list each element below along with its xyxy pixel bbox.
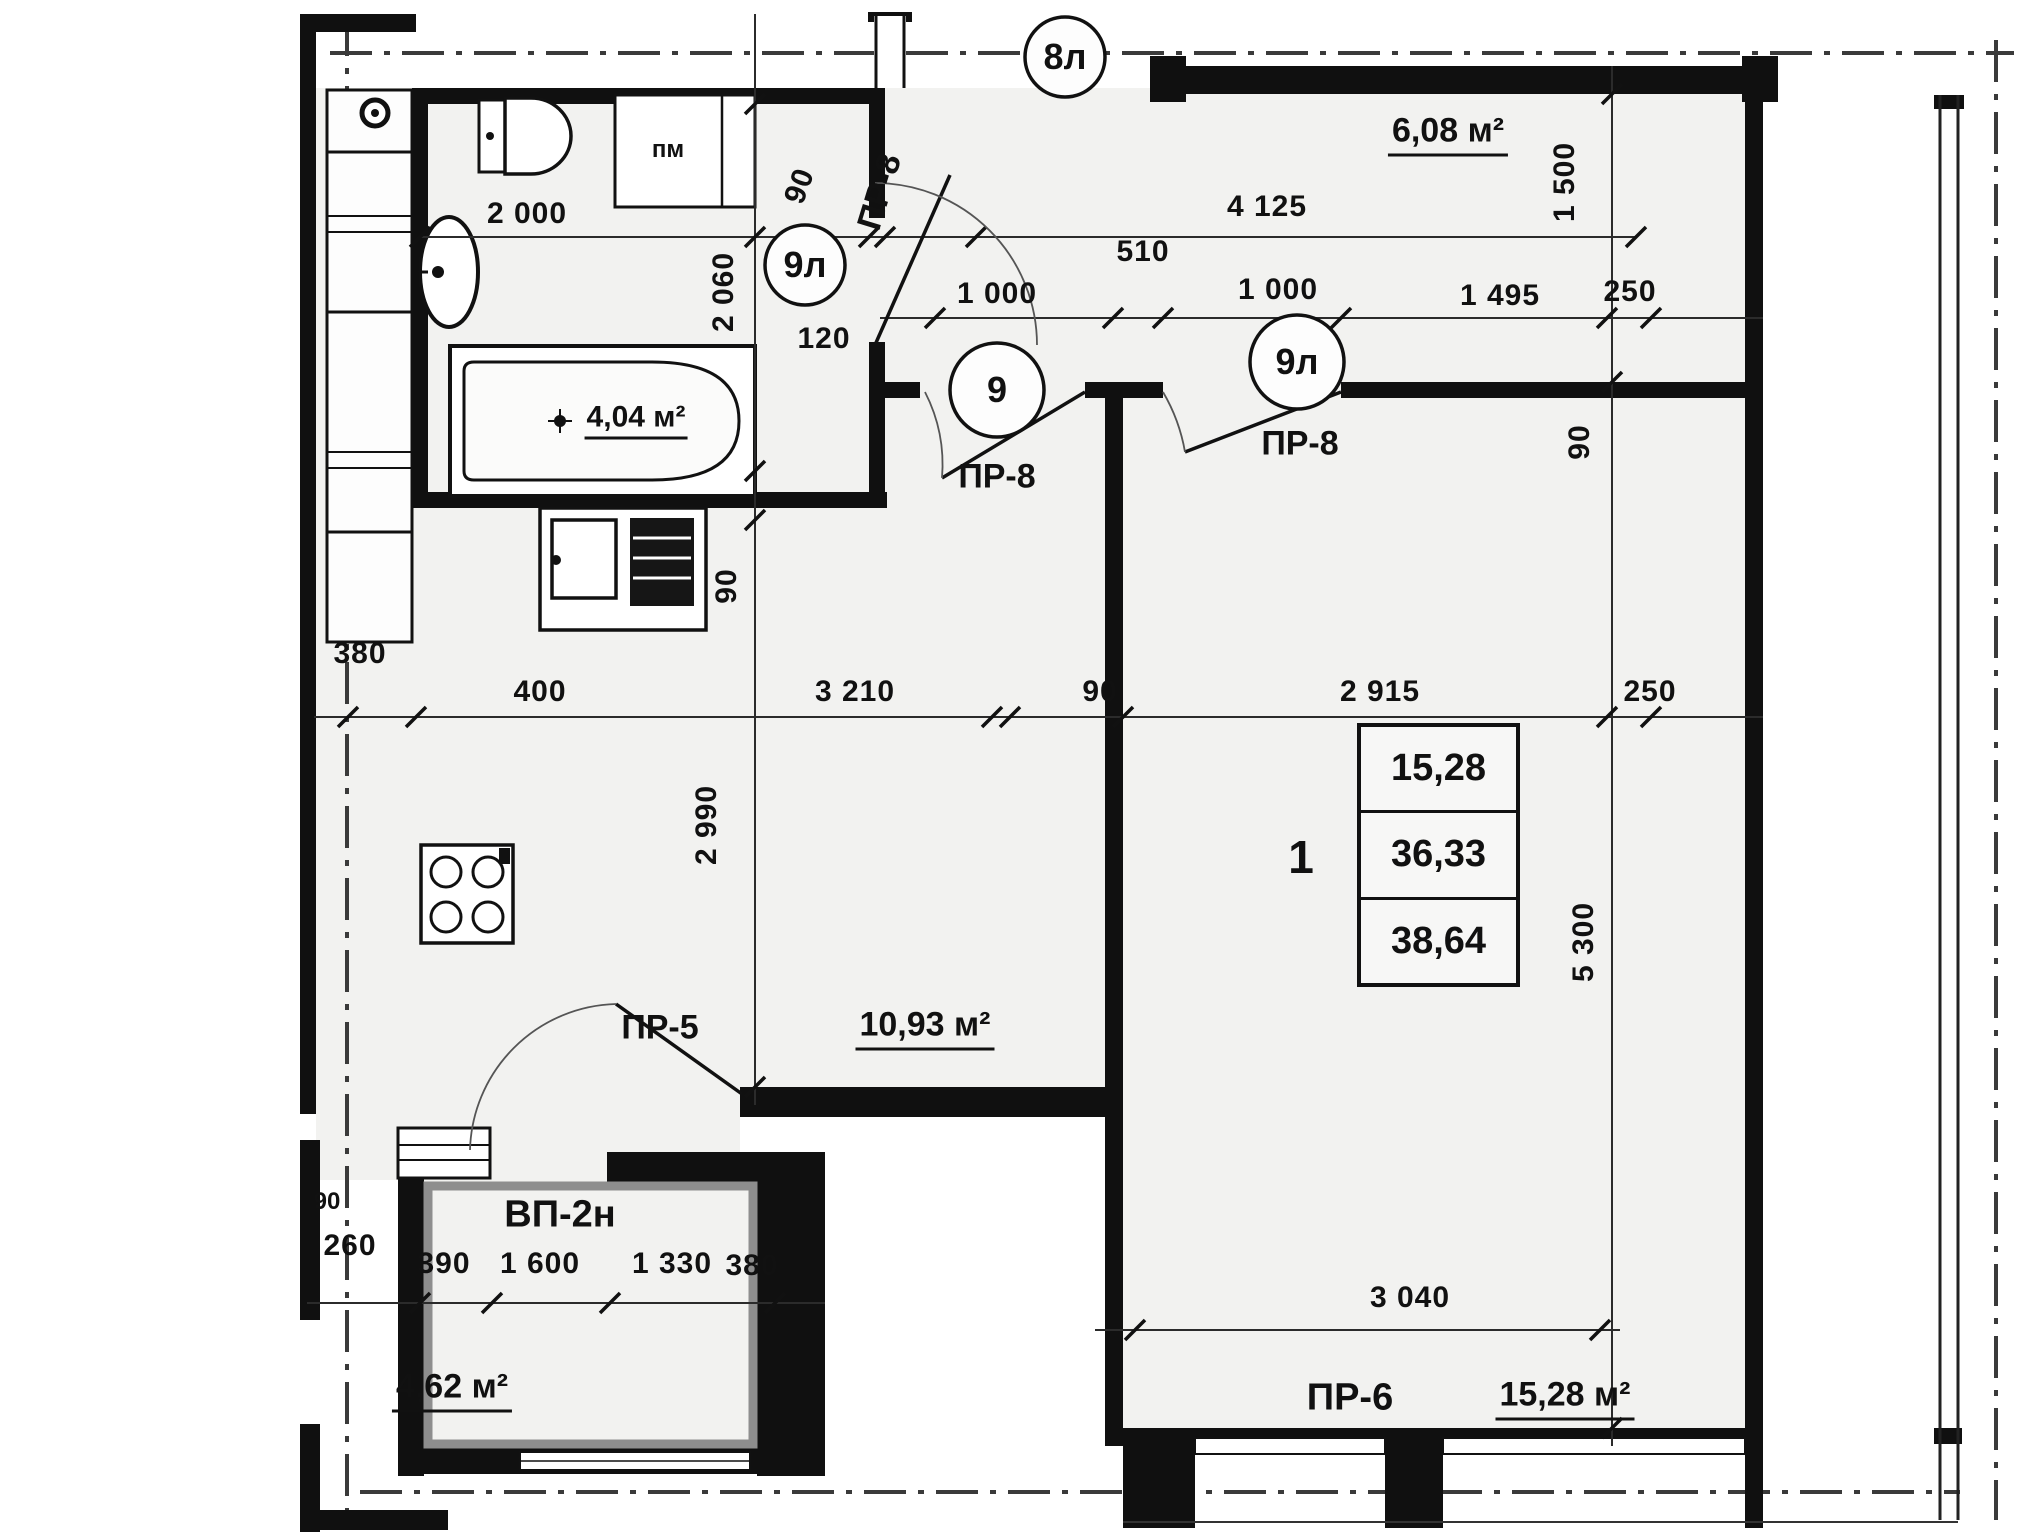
dim-2915: 2 915 [1340, 675, 1420, 709]
washing-machine-icon [615, 95, 755, 207]
dim-250-a: 250 [1603, 275, 1656, 309]
dim-260: 260 [323, 1229, 376, 1263]
window-top [874, 16, 906, 88]
area-hall: 10,93 м² [855, 1006, 994, 1051]
wall-right-outer [1745, 56, 1763, 1448]
area-bottom-left: 4,62 м² [392, 1368, 512, 1413]
room-fills [316, 88, 1763, 1448]
label-pr6: ПР-6 [1307, 1377, 1393, 1420]
wall-left-outer [300, 14, 316, 1114]
dim-2060: 2 060 [707, 252, 741, 332]
dim-90-sink: 90 [710, 568, 744, 603]
wall-div-a [869, 382, 920, 398]
table-row-living-area: 15,28 [1361, 727, 1516, 813]
wall-hall-bottom [740, 1087, 1123, 1117]
stove-icon [421, 845, 513, 943]
label-pr8-room: ПР-8 [1261, 425, 1338, 464]
dim-2990: 2 990 [690, 785, 724, 865]
wall-div-b [1085, 382, 1163, 398]
axis-label-9l-room: 9л [1276, 341, 1319, 383]
dim-400: 400 [513, 675, 566, 709]
label-vp2n: ВП-2н [504, 1194, 616, 1237]
area-living: 15,28 м² [1495, 1376, 1634, 1421]
kitchen-sink-icon [540, 508, 706, 630]
window-vp2n [398, 1128, 490, 1178]
dim-1000-b: 1 000 [1238, 273, 1318, 307]
dim-1330: 1 330 [632, 1247, 712, 1281]
toilet-icon [479, 98, 571, 174]
label-pr5: ПР-5 [621, 1009, 698, 1048]
wall-bl-corner-h [300, 1510, 448, 1530]
wall-div-c [1341, 382, 1745, 398]
area-top-right: 6,08 м² [1388, 112, 1508, 157]
dim-380-b: 380 [725, 1249, 778, 1283]
wall-br-block-b [1385, 1428, 1443, 1528]
dim-5300: 5 300 [1567, 902, 1601, 982]
wall-bath-right-lower [869, 342, 885, 508]
pipe-riser-icon [362, 100, 388, 126]
dim-510: 510 [1116, 235, 1169, 269]
dim-3040: 3 040 [1370, 1281, 1450, 1315]
wall-vp2n-right [757, 1152, 825, 1476]
axis-label-9l-bath: 9л [784, 244, 827, 286]
dim-390: 390 [417, 1247, 470, 1281]
label-pr8-hall: ПР-8 [958, 458, 1035, 497]
wall-cap-a [1150, 56, 1186, 102]
neighbor-wall-lines [1940, 95, 1958, 1520]
dim-380-left: 380 [333, 637, 386, 671]
axis-label-8l: 8л [1044, 36, 1087, 78]
wall-br-block-a [1123, 1428, 1195, 1528]
axis-label-9: 9 [987, 369, 1007, 411]
table-row-total-area: 36,33 [1361, 813, 1516, 899]
dim-4125: 4 125 [1227, 190, 1307, 224]
wall-left-stub [300, 1140, 320, 1320]
floor-plan: 8л 9л 9 9л пм ПР-8 ПР-8 ПР-8 ПР-5 ПР-6 В… [0, 0, 2020, 1538]
area-bathroom: 4,04 м² [585, 401, 688, 440]
plan-drawing [0, 0, 2020, 1538]
apartment-areas-table: 15,28 36,33 38,64 [1357, 723, 1520, 987]
basin-icon [420, 217, 478, 327]
dim-90-mid: 90 [1082, 675, 1117, 709]
wall-topright-room [1158, 66, 1763, 94]
dim-1600: 1 600 [500, 1247, 580, 1281]
dim-2000: 2 000 [487, 197, 567, 231]
apartment-number: 1 [1288, 830, 1314, 884]
dim-1500: 1 500 [1548, 142, 1582, 222]
dim-1495: 1 495 [1460, 279, 1540, 313]
dim-3210: 3 210 [815, 675, 895, 709]
dim-1000-a: 1 000 [957, 277, 1037, 311]
dim-120: 120 [797, 322, 850, 356]
dim-250-b: 250 [1623, 675, 1676, 709]
washing-machine-label: пм [652, 136, 684, 164]
wall-top-left-cap [300, 14, 416, 32]
dim-90-right: 90 [1563, 424, 1597, 459]
kitchen-counter [327, 90, 412, 642]
dim-90-bottom-left: 90 [314, 1188, 341, 1216]
wall-room-left [1105, 382, 1123, 1446]
table-row-full-area: 38,64 [1361, 900, 1516, 983]
wall-br-block-c [1745, 1428, 1763, 1528]
